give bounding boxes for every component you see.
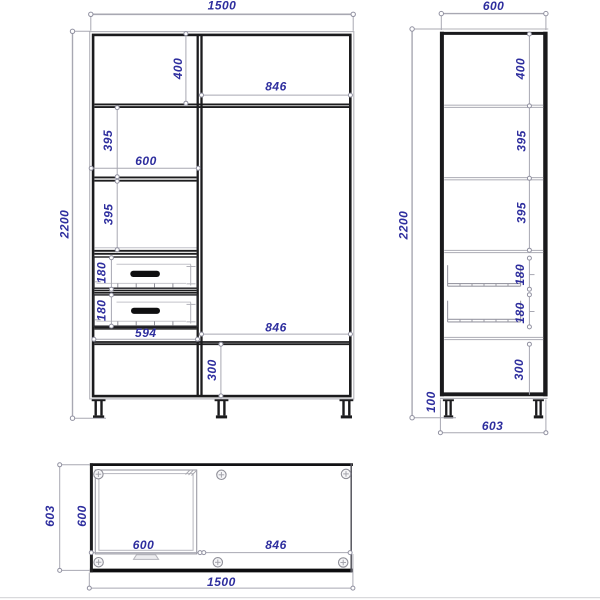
svg-text:395: 395 — [514, 202, 528, 224]
svg-text:180: 180 — [513, 264, 527, 286]
svg-text:300: 300 — [205, 359, 219, 381]
svg-text:1500: 1500 — [208, 0, 237, 13]
svg-text:594: 594 — [135, 326, 157, 340]
svg-text:846: 846 — [265, 320, 287, 334]
svg-text:603: 603 — [482, 419, 504, 433]
svg-text:600: 600 — [75, 505, 89, 527]
svg-text:395: 395 — [514, 130, 528, 152]
svg-text:180: 180 — [513, 302, 527, 324]
svg-text:180: 180 — [94, 262, 108, 284]
svg-text:600: 600 — [133, 538, 155, 552]
svg-text:846: 846 — [265, 80, 287, 94]
svg-text:2200: 2200 — [396, 211, 410, 241]
svg-text:395: 395 — [101, 204, 115, 226]
svg-text:180: 180 — [94, 300, 108, 322]
svg-text:2200: 2200 — [57, 210, 71, 240]
svg-text:600: 600 — [135, 154, 157, 168]
svg-text:400: 400 — [171, 58, 185, 81]
svg-text:300: 300 — [512, 359, 526, 381]
svg-text:1500: 1500 — [207, 575, 236, 589]
svg-text:600: 600 — [483, 0, 505, 13]
svg-text:100: 100 — [424, 391, 438, 413]
svg-text:846: 846 — [265, 538, 287, 552]
svg-text:395: 395 — [101, 130, 115, 152]
svg-text:400: 400 — [513, 58, 527, 81]
svg-text:603: 603 — [43, 505, 57, 527]
